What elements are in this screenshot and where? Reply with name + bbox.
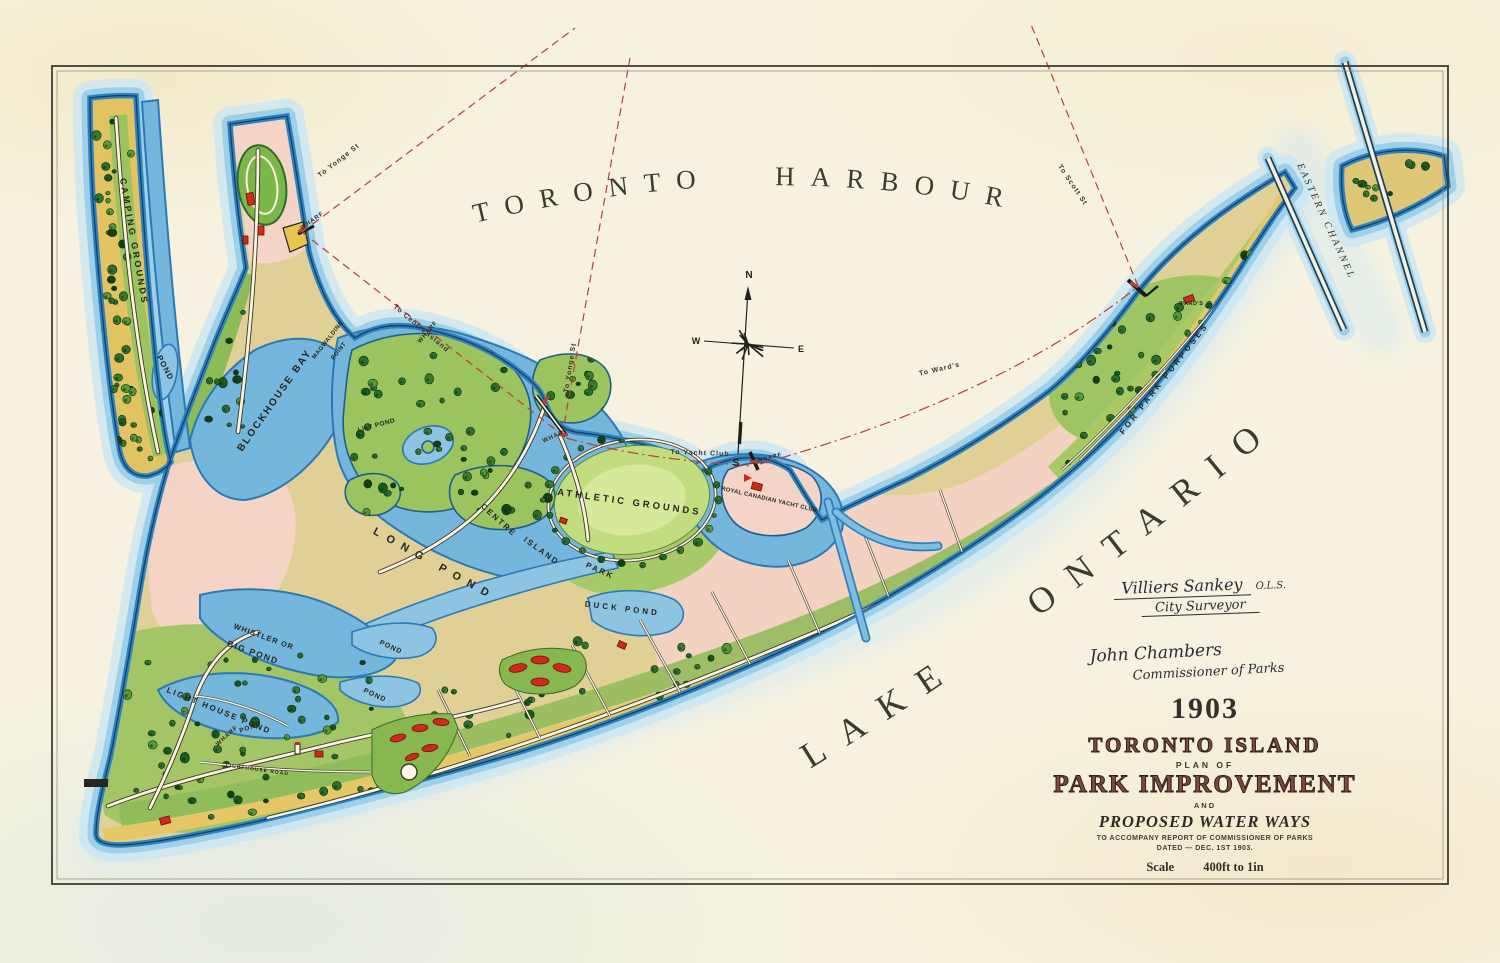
tree-icon [107, 276, 115, 283]
tree-icon [1249, 361, 1254, 366]
tree-icon [1138, 352, 1143, 358]
tree-icon [145, 660, 151, 665]
tree-icon [295, 696, 300, 702]
island-title: TORONTO ISLAND [1030, 733, 1380, 758]
tree-icon [92, 131, 101, 141]
tree-icon [454, 388, 461, 396]
tree-icon [109, 298, 115, 304]
compass-w: W [692, 336, 701, 346]
tree-icon [351, 453, 358, 461]
tree-icon [206, 377, 212, 384]
tree-icon [1151, 355, 1160, 365]
tree-icon [715, 496, 722, 504]
tree-icon [222, 405, 230, 413]
compass-s: S [733, 458, 740, 469]
dated-note: DATED — DEC. 1ST 1903. [1030, 845, 1380, 852]
tree-icon [678, 643, 685, 651]
tree-icon [516, 793, 522, 799]
tree-icon [263, 799, 268, 803]
tree-icon [509, 801, 516, 808]
tree-icon [677, 547, 684, 554]
tree-icon [181, 707, 188, 714]
tree-icon [471, 490, 478, 496]
compass-n: N [745, 270, 752, 281]
tree-icon [134, 788, 139, 792]
compass-rose: N S W E [692, 270, 804, 469]
tree-icon [106, 191, 110, 194]
tree-icon [598, 436, 606, 443]
tree-icon [500, 367, 507, 373]
place-label: WARD'S [1179, 301, 1204, 307]
tree-icon [332, 781, 341, 790]
tree-icon [451, 689, 457, 694]
tree-icon [722, 643, 731, 654]
tree-icon [1358, 180, 1367, 187]
tree-icon [708, 655, 714, 661]
tree-icon [1205, 303, 1212, 308]
tree-icon [1061, 393, 1068, 399]
tree-icon [524, 699, 530, 705]
tree-icon [1210, 390, 1217, 396]
tree-icon [1063, 410, 1068, 415]
tree-icon [263, 774, 269, 780]
tree-icon [226, 338, 233, 344]
tree-icon [487, 457, 495, 466]
tree-icon [578, 445, 584, 451]
tree-icon [368, 379, 378, 387]
tree-icon [573, 637, 582, 646]
tree-icon [500, 796, 507, 802]
tree-icon [506, 733, 510, 738]
scale-value: 400ft to 1in [1203, 860, 1263, 874]
tree-icon [102, 162, 110, 170]
tree-icon [659, 554, 667, 560]
accompany-note: TO ACCOMPANY REPORT OF COMMISSIONER OF P… [1030, 835, 1380, 842]
tree-icon [488, 468, 492, 472]
tree-icon [1363, 191, 1369, 197]
tree-icon [298, 653, 303, 658]
tree-icon [284, 734, 289, 740]
tree-icon [332, 754, 338, 759]
tree-icon [137, 447, 142, 452]
tree-icon [119, 419, 126, 426]
tree-icon [323, 726, 331, 735]
tree-icon [372, 454, 377, 458]
tree-icon [195, 722, 200, 726]
tree-icon [1087, 355, 1096, 365]
tree-icon [241, 310, 246, 314]
tree-icon [547, 512, 553, 518]
tree-icon [359, 356, 369, 366]
title-block: 1903 TORONTO ISLAND PLAN OF PARK IMPROVE… [1030, 692, 1380, 875]
tree-icon [391, 483, 396, 488]
tree-icon [123, 690, 132, 700]
tree-icon [579, 688, 585, 694]
tree-icon [363, 508, 370, 516]
tree-icon [127, 150, 134, 157]
surveyor-name: Villiers Sankey [1113, 574, 1251, 600]
tree-icon [114, 354, 123, 363]
tree-icon [458, 489, 464, 495]
tree-icon [552, 528, 557, 532]
tree-icon [170, 720, 176, 726]
tree-icon [502, 504, 512, 515]
water-ways-title: PROPOSED WATER WAYS [1030, 812, 1380, 832]
tree-icon [686, 654, 691, 658]
map-year: 1903 [1030, 692, 1380, 726]
tree-icon [500, 448, 507, 455]
tree-icon [297, 793, 305, 799]
tree-icon [1421, 162, 1429, 171]
tree-icon [540, 498, 545, 503]
tree-icon [130, 434, 137, 441]
tree-icon [480, 469, 487, 476]
tree-icon [582, 642, 589, 649]
tree-icon [108, 265, 117, 275]
tree-icon [399, 487, 404, 491]
tree-icon [235, 681, 241, 687]
compass-ray [731, 343, 748, 344]
tree-icon [584, 389, 593, 396]
tree-icon [416, 449, 422, 455]
tree-icon [545, 481, 554, 488]
tree-icon [1107, 345, 1112, 350]
tree-icon [1075, 393, 1084, 401]
tree-icon [1217, 368, 1226, 377]
tree-icon [1200, 412, 1205, 416]
tree-icon [1186, 414, 1191, 419]
tree-icon [224, 658, 229, 663]
tree-icon [424, 428, 432, 435]
tree-icon [233, 376, 242, 384]
tree-icon [436, 447, 442, 452]
tree-icon [164, 794, 169, 799]
tree-icon [227, 423, 232, 427]
tree-icon [445, 433, 453, 441]
tree-icon [369, 707, 373, 710]
ferry-route [1030, 22, 1138, 286]
tree-icon [651, 665, 658, 672]
tree-icon [712, 514, 717, 518]
tree-icon [208, 814, 214, 819]
wharf-label: WHARF [86, 779, 110, 785]
route-label: To Scott St [1056, 164, 1088, 207]
tree-icon [1388, 191, 1393, 195]
tree-icon [111, 385, 118, 392]
tree-icon [433, 441, 441, 447]
tree-icon [121, 385, 130, 393]
tree-icon [425, 374, 434, 384]
tree-icon [378, 483, 387, 493]
tree-icon [240, 747, 246, 753]
tree-icon [360, 660, 366, 664]
tree-icon [640, 562, 646, 568]
tree-icon [233, 370, 238, 375]
tree-icon [1084, 299, 1089, 304]
tree-icon [361, 388, 370, 395]
tree-icon [103, 141, 111, 149]
route-label: To Ward's [919, 361, 961, 377]
tree-icon [180, 752, 189, 763]
tree-icon [196, 308, 205, 316]
tree-icon [416, 400, 425, 407]
tree-icon [1146, 313, 1155, 322]
tree-icon [114, 374, 123, 381]
tree-icon [1057, 347, 1064, 354]
tree-icon [131, 423, 137, 428]
tree-icon [464, 721, 473, 729]
tree-icon [214, 379, 219, 385]
tree-icon [579, 548, 585, 554]
tree-icon [148, 456, 153, 461]
tree-icon [1111, 375, 1120, 382]
tree-icon [318, 675, 327, 683]
tree-icon [188, 798, 196, 804]
tree-icon [242, 681, 247, 685]
tree-icon [227, 791, 234, 798]
harbour-label: TORONTO HARBOUR [470, 161, 1022, 229]
tree-icon [1173, 312, 1181, 321]
tree-icon [212, 730, 220, 738]
tree-icon [266, 667, 271, 671]
tree-icon [442, 687, 448, 693]
tree-icon [551, 466, 559, 473]
tree-icon [466, 427, 474, 435]
tree-icon [693, 538, 702, 546]
tree-icon [510, 777, 517, 783]
tree-icon [122, 318, 131, 325]
tree-icon [461, 445, 467, 450]
tree-icon [430, 352, 437, 359]
tree-icon [706, 525, 713, 532]
compass-north-arrow [745, 286, 752, 300]
tree-icon [112, 170, 116, 174]
tree-icon [123, 395, 131, 403]
tree-icon [1118, 326, 1126, 334]
tree-icon [1373, 185, 1379, 192]
tree-icon [234, 796, 243, 804]
tree-icon [366, 677, 373, 684]
tree-icon [113, 316, 121, 325]
tree-icon [440, 398, 445, 403]
route-label: To Yonge St [317, 142, 361, 179]
tree-icon [399, 378, 406, 385]
tree-icon [1116, 387, 1123, 395]
tree-icon [122, 345, 131, 353]
tree-icon [106, 209, 113, 215]
tree-icon [1405, 159, 1412, 167]
tree-icon [163, 747, 171, 754]
tree-icon [324, 715, 329, 720]
tree-icon [1094, 348, 1102, 354]
tree-icon [617, 560, 625, 567]
tree-icon [109, 224, 116, 230]
tree-icon [320, 787, 328, 796]
tree-icon [248, 809, 257, 816]
tree-icon [598, 556, 605, 563]
tree-icon [1127, 386, 1133, 391]
tree-icon [562, 537, 570, 544]
tree-icon [119, 292, 127, 302]
tree-icon [491, 383, 500, 392]
tree-icon [705, 468, 712, 475]
tree-icon [148, 741, 157, 749]
scale-note: Scale 400ft to 1in [1030, 860, 1380, 875]
tree-icon [463, 472, 472, 481]
and-label: AND [1030, 801, 1380, 810]
tree-icon [1065, 311, 1070, 315]
scale-label: Scale [1146, 860, 1174, 874]
tree-icon [111, 286, 116, 291]
tree-icon [298, 716, 305, 723]
tree-icon [106, 198, 111, 203]
compass-e: E [798, 344, 804, 354]
tree-icon [1222, 277, 1231, 284]
tree-icon [287, 705, 296, 712]
tree-icon [695, 664, 700, 669]
tree-icon [585, 371, 593, 380]
tree-icon [364, 480, 372, 488]
tree-icon [1237, 362, 1244, 369]
tree-icon [525, 482, 531, 488]
tree-icon [713, 482, 719, 489]
tree-icon [1093, 376, 1100, 383]
main-title: PARK IMPROVEMENT [1030, 771, 1380, 799]
tree-icon [148, 731, 155, 737]
tree-icon [533, 510, 542, 520]
map-stage: N S W E TORONTO HARBOUR LAKE ONTARIO EAS… [0, 0, 1500, 963]
tree-icon [205, 416, 213, 422]
plan-of-label: PLAN OF [1030, 760, 1380, 770]
tree-icon [158, 763, 164, 769]
tree-icon [293, 686, 300, 693]
tree-icon [673, 669, 680, 675]
tree-icon [1370, 195, 1377, 202]
tree-icon [576, 382, 581, 386]
tree-icon [1227, 388, 1233, 394]
tree-icon [1080, 432, 1087, 439]
tree-icon [374, 390, 382, 398]
tree-icon [104, 174, 112, 181]
tree-icon [95, 194, 104, 203]
tree-icon [422, 811, 431, 822]
compass-ray [748, 344, 749, 355]
surveyor-degree: O.L.S. [1256, 580, 1287, 592]
tree-icon [461, 457, 467, 461]
